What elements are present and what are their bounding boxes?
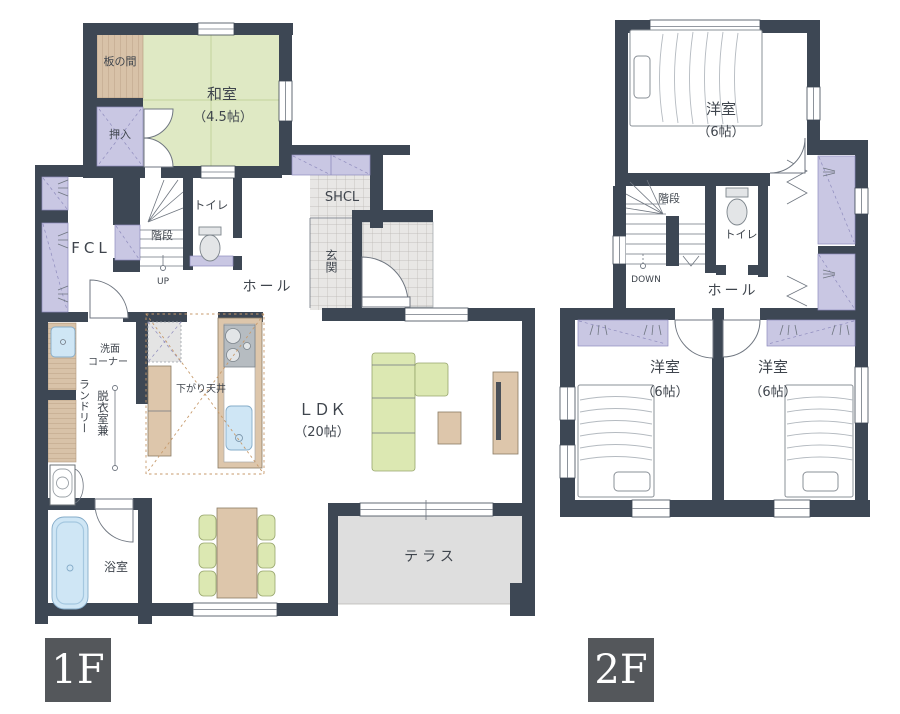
toilet2-label: トイレ bbox=[725, 228, 758, 241]
senmen-label-2: コーナー bbox=[88, 356, 128, 368]
toilet2-bowl bbox=[727, 199, 747, 225]
fcl-closet-lower bbox=[42, 223, 68, 312]
kitchen-sink bbox=[226, 406, 252, 450]
itanoma-label: 板の間 bbox=[104, 54, 137, 68]
bath-door bbox=[95, 504, 133, 542]
washbasin bbox=[51, 327, 75, 357]
bedroom-left-door bbox=[675, 320, 713, 358]
hall1-label: ホール bbox=[243, 279, 294, 295]
sofa bbox=[372, 353, 448, 471]
washitsu-label: 和室 bbox=[207, 85, 237, 103]
up-label: UP bbox=[157, 277, 170, 287]
laundry-label: ランドリー bbox=[78, 379, 91, 434]
floor1-badge: 1F bbox=[45, 638, 111, 702]
sagari-tenjo-label: 下がり天井 bbox=[176, 382, 226, 395]
bedroom-right-size-label: （6帖） bbox=[749, 385, 796, 400]
datsui-label: 脱衣室兼 bbox=[96, 389, 110, 437]
coffee-table bbox=[438, 412, 461, 444]
bedroom-right-label: 洋室 bbox=[758, 358, 788, 376]
bath-label: 浴室 bbox=[104, 559, 128, 574]
toilet-bowl bbox=[200, 235, 220, 261]
ldk-label: ＬＤＫ bbox=[298, 400, 346, 419]
bed-top bbox=[630, 30, 762, 126]
fcl-door bbox=[90, 280, 128, 318]
bedroom-top-label: 洋室 bbox=[706, 100, 736, 118]
senmen-label-1: 洗面 bbox=[100, 343, 120, 355]
genkan-label: 玄関 bbox=[324, 248, 338, 273]
bed-right bbox=[785, 385, 853, 497]
floor1-stairs bbox=[140, 180, 183, 271]
laundry-wood-counter-lower bbox=[48, 400, 76, 462]
down-label: DOWN bbox=[631, 275, 661, 285]
toilet2-tank bbox=[726, 188, 748, 197]
bedroom-right-door bbox=[723, 320, 760, 357]
tv bbox=[496, 382, 501, 440]
bedroom-top-door bbox=[770, 138, 805, 173]
bed-left bbox=[578, 385, 654, 497]
floor1-plan: 板の間 和室 （4.5帖） 押入 FCL 階段 UP トイレ ホール SHCL … bbox=[30, 8, 542, 626]
floorplan-canvas: 板の間 和室 （4.5帖） 押入 FCL 階段 UP トイレ ホール SHCL … bbox=[0, 0, 900, 714]
stairs2-label: 階段 bbox=[658, 191, 680, 205]
fcl-label: FCL bbox=[71, 239, 110, 257]
stairs1-label: 階段 bbox=[151, 228, 173, 242]
dining-table bbox=[217, 508, 257, 598]
shcl-label: SHCL bbox=[325, 190, 360, 205]
floor2-plan: 洋室 （6帖） 階段 DOWN トイレ ホール 洋室 （6帖） 洋室 （6帖） bbox=[555, 8, 895, 626]
terrace-label: テラス bbox=[404, 549, 458, 565]
floor2-badge: 2F bbox=[588, 638, 654, 702]
ldk-size-label: （20帖） bbox=[294, 425, 350, 440]
bedroom-left-size-label: （6帖） bbox=[641, 385, 688, 400]
bedroom-top-size-label: （6帖） bbox=[697, 125, 744, 140]
washing-machine bbox=[50, 465, 75, 505]
toilet1-label: トイレ bbox=[194, 198, 229, 212]
floor1-badge-text: 1F bbox=[51, 647, 104, 693]
bedroom-left-label: 洋室 bbox=[650, 358, 680, 376]
closet-room-left bbox=[578, 320, 668, 346]
floor2-badge-text: 2F bbox=[594, 647, 647, 693]
oshiire-label: 押入 bbox=[109, 127, 131, 141]
hall2-label: ホール bbox=[708, 283, 759, 299]
toilet-tank bbox=[199, 227, 221, 235]
bathtub bbox=[52, 517, 88, 609]
washitsu-size-label: （4.5帖） bbox=[193, 110, 253, 125]
